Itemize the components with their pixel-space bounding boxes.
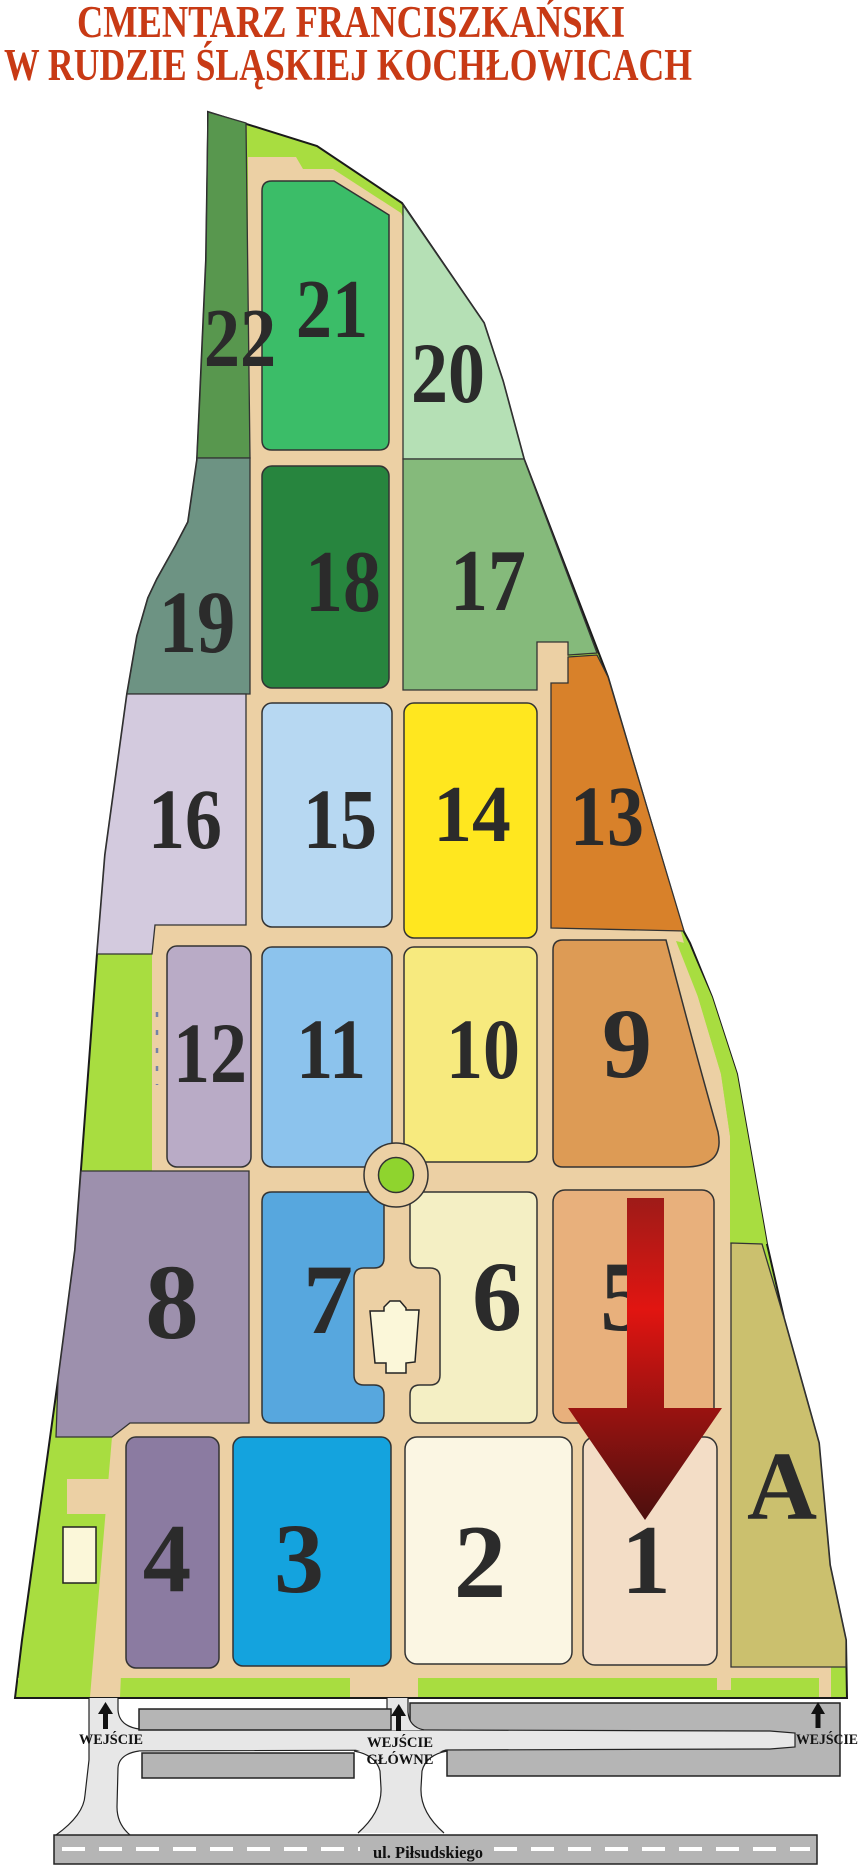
svg-text:22: 22 — [204, 291, 276, 384]
svg-text:ul. Piłsudskiego: ul. Piłsudskiego — [373, 1843, 483, 1862]
svg-text:W RUDZIE ŚLĄSKIEJ KOCHŁOWICACH: W RUDZIE ŚLĄSKIEJ KOCHŁOWICACH — [4, 40, 692, 90]
svg-text:20: 20 — [411, 327, 485, 421]
svg-text:GŁÓWNE: GŁÓWNE — [367, 1751, 434, 1768]
svg-text:4: 4 — [143, 1505, 192, 1612]
svg-text:A: A — [747, 1433, 817, 1540]
svg-text:6: 6 — [472, 1241, 522, 1352]
svg-text:WEJŚCIE: WEJŚCIE — [367, 1734, 433, 1751]
svg-text:18: 18 — [305, 533, 381, 631]
svg-text:1: 1 — [621, 1506, 671, 1615]
svg-text:13: 13 — [570, 770, 644, 864]
svg-text:14: 14 — [433, 771, 511, 859]
svg-text:16: 16 — [148, 773, 222, 867]
svg-text:WEJŚCIE: WEJŚCIE — [796, 1731, 858, 1748]
svg-text:10: 10 — [446, 1003, 520, 1097]
svg-text:17: 17 — [450, 532, 526, 630]
svg-text:7: 7 — [303, 1244, 353, 1355]
svg-text:2: 2 — [454, 1503, 507, 1620]
svg-text:12: 12 — [173, 1007, 247, 1101]
svg-text:15: 15 — [303, 773, 377, 867]
svg-text:9: 9 — [602, 988, 652, 1099]
svg-text:11: 11 — [296, 1003, 366, 1097]
svg-text:21: 21 — [296, 262, 368, 355]
svg-text:19: 19 — [159, 573, 236, 672]
svg-text:8: 8 — [145, 1244, 199, 1362]
svg-text:WEJŚCIE: WEJŚCIE — [79, 1731, 143, 1748]
svg-text:3: 3 — [274, 1503, 324, 1614]
